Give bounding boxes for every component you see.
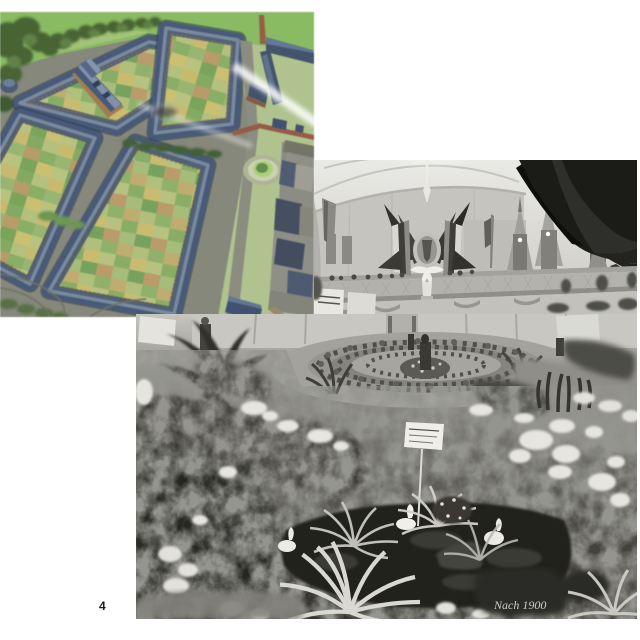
svg-text:Nach 1900: Nach 1900 <box>493 598 546 612</box>
